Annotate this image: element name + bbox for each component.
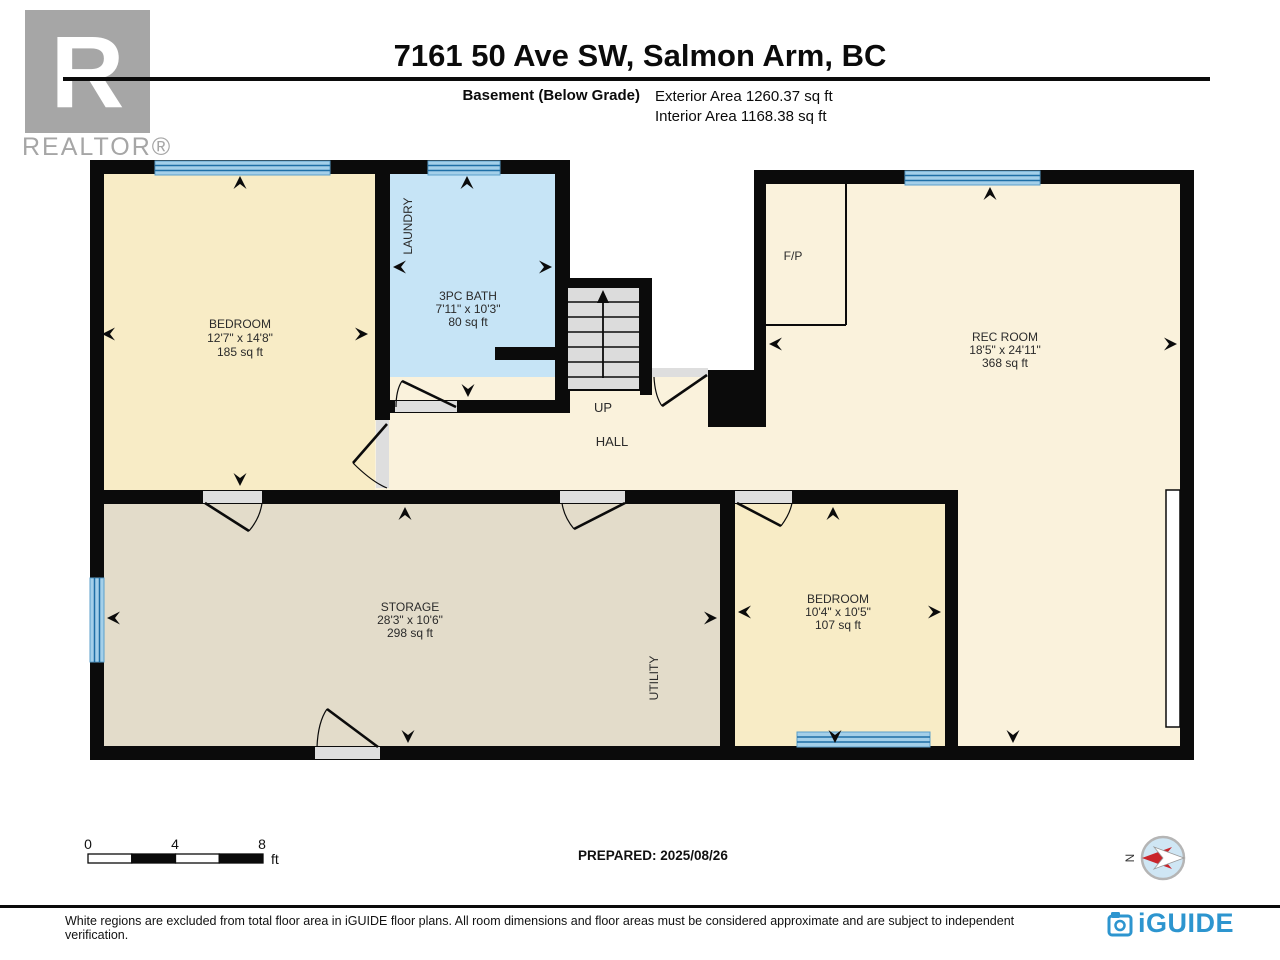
scale-tick-8: 8 — [258, 836, 266, 852]
floor-plan-page: R REALTOR® 7161 50 Ave SW, Salmon Arm, B… — [0, 0, 1280, 960]
staircase — [567, 287, 640, 390]
floor-plan-svg: BEDROOM 12'7" x 14'8" 185 sq ft 3PC BATH… — [0, 0, 1280, 960]
label-laundry: LAUNDRY — [401, 197, 415, 254]
scale-tick-4: 4 — [171, 836, 179, 852]
label-utility: UTILITY — [647, 656, 661, 701]
room-fills — [104, 170, 1180, 746]
window-storage — [90, 578, 104, 662]
page-title: 7161 50 Ave SW, Salmon Arm, BC — [0, 38, 1280, 74]
disclaimer-text: White regions are excluded from total fl… — [65, 914, 1025, 942]
wall-recess — [1166, 490, 1180, 727]
window-rec-room — [905, 171, 1040, 185]
window-bath — [428, 161, 500, 175]
svg-text:28'3" x 10'6": 28'3" x 10'6" — [377, 613, 443, 627]
svg-text:REC ROOM: REC ROOM — [972, 330, 1038, 344]
scale-unit: ft — [271, 851, 279, 867]
compass-icon: N — [1123, 837, 1184, 879]
svg-text:18'5" x 24'11": 18'5" x 24'11" — [969, 343, 1041, 357]
svg-text:298 sq ft: 298 sq ft — [387, 626, 434, 640]
svg-text:7'11" x 10'3": 7'11" x 10'3" — [436, 302, 501, 316]
svg-text:3PC BATH: 3PC BATH — [439, 289, 497, 303]
svg-text:368 sq ft: 368 sq ft — [982, 356, 1029, 370]
scale-bar: 0 4 8 ft — [84, 836, 279, 867]
svg-text:107 sq ft: 107 sq ft — [815, 618, 862, 632]
svg-text:185 sq ft: 185 sq ft — [217, 345, 264, 359]
svg-text:12'7" x 14'8": 12'7" x 14'8" — [207, 331, 273, 345]
svg-text:STORAGE: STORAGE — [381, 600, 439, 614]
iguide-camera-icon — [1106, 910, 1134, 938]
iguide-brand-text: iGUIDE — [1138, 908, 1234, 939]
window-bedroom2 — [797, 732, 930, 747]
svg-text:10'4" x 10'5": 10'4" x 10'5" — [805, 605, 871, 619]
svg-text:BEDROOM: BEDROOM — [807, 592, 869, 606]
title-rule — [63, 77, 1210, 81]
label-up: UP — [594, 400, 612, 415]
svg-text:BEDROOM: BEDROOM — [209, 317, 271, 331]
realtor-logo-text: REALTOR® — [22, 133, 172, 162]
iguide-logo: iGUIDE — [1106, 908, 1234, 939]
window-bedroom1 — [155, 161, 330, 175]
label-fireplace: F/P — [784, 249, 803, 263]
compass-north-label: N — [1123, 854, 1137, 863]
svg-text:80 sq ft: 80 sq ft — [448, 315, 488, 329]
prepared-date: PREPARED: 2025/08/26 — [578, 848, 728, 863]
scale-tick-0: 0 — [84, 836, 92, 852]
footer-rule — [0, 905, 1280, 908]
chimney-block — [708, 370, 766, 427]
label-hall: HALL — [596, 434, 629, 449]
